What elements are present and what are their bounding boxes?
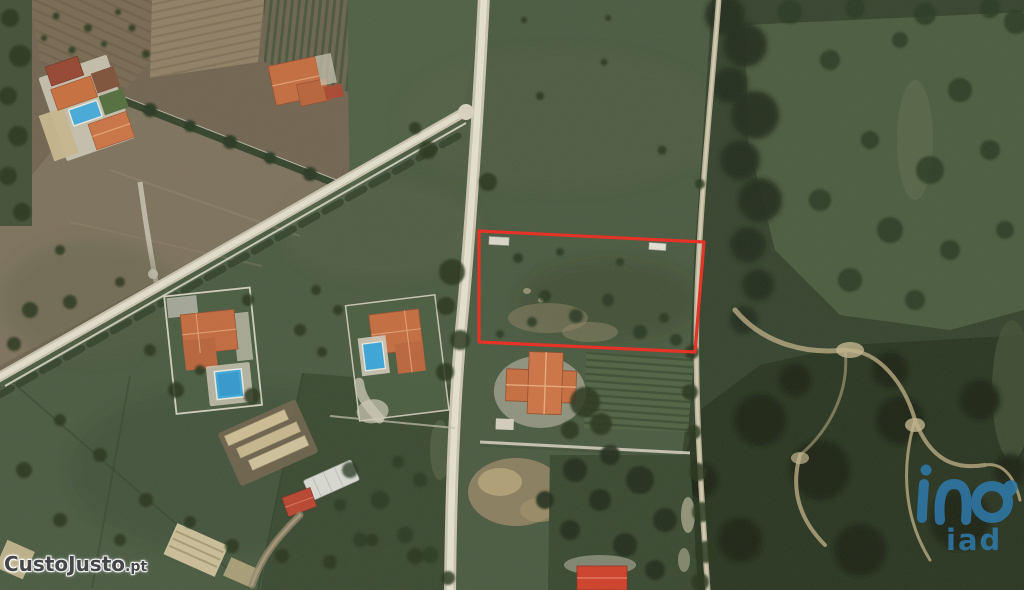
custojusto-watermark-text: CustoJusto <box>4 552 125 576</box>
custojusto-watermark-suffix: .pt <box>125 559 147 575</box>
iad-logo-text: iad <box>946 526 1002 555</box>
iad-logo: iad <box>910 458 1022 576</box>
satellite-photo <box>0 0 1024 590</box>
custojusto-watermark: CustoJusto.pt <box>4 552 147 576</box>
image-grain-overlay <box>0 0 1024 590</box>
satellite-map: CustoJusto.pt iad <box>0 0 1024 590</box>
